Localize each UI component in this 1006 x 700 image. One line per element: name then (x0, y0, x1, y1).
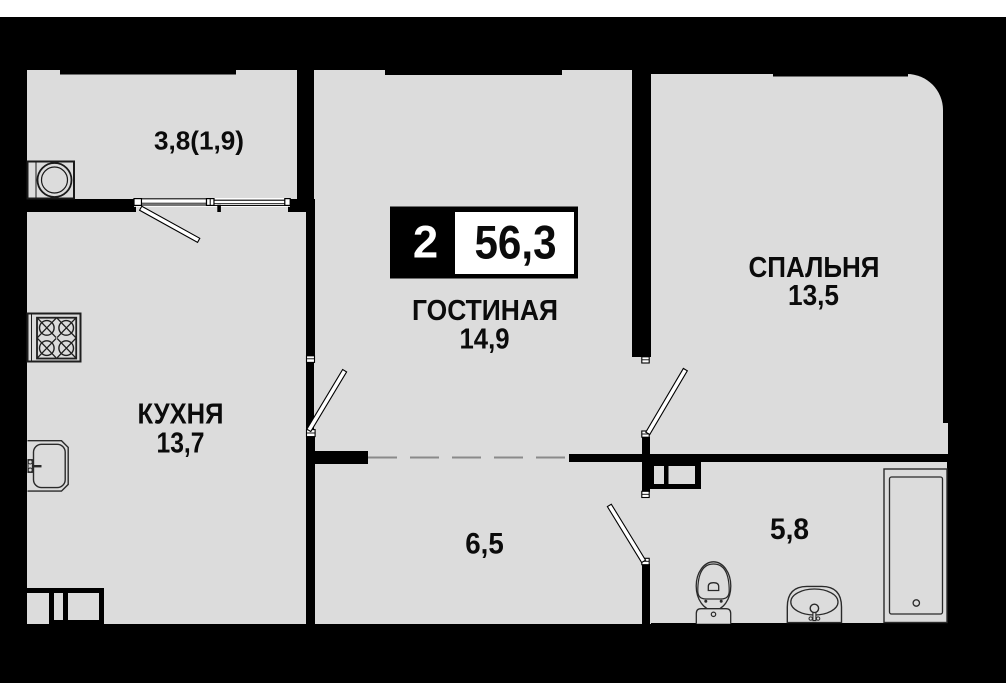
svg-text:56,3: 56,3 (475, 217, 557, 270)
svg-text:14,9: 14,9 (460, 324, 510, 356)
svg-text:5,8: 5,8 (770, 513, 809, 546)
svg-text:13,7: 13,7 (157, 428, 205, 460)
svg-text:КУХНЯ: КУХНЯ (138, 398, 224, 430)
svg-text:13,5: 13,5 (788, 280, 839, 312)
svg-text:2: 2 (413, 217, 438, 268)
svg-text:6,5: 6,5 (465, 528, 504, 561)
svg-text:СПАЛЬНЯ: СПАЛЬНЯ (749, 252, 880, 284)
svg-text:3,8(1,9): 3,8(1,9) (154, 126, 244, 156)
svg-text:ГОСТИНАЯ: ГОСТИНАЯ (412, 295, 558, 327)
